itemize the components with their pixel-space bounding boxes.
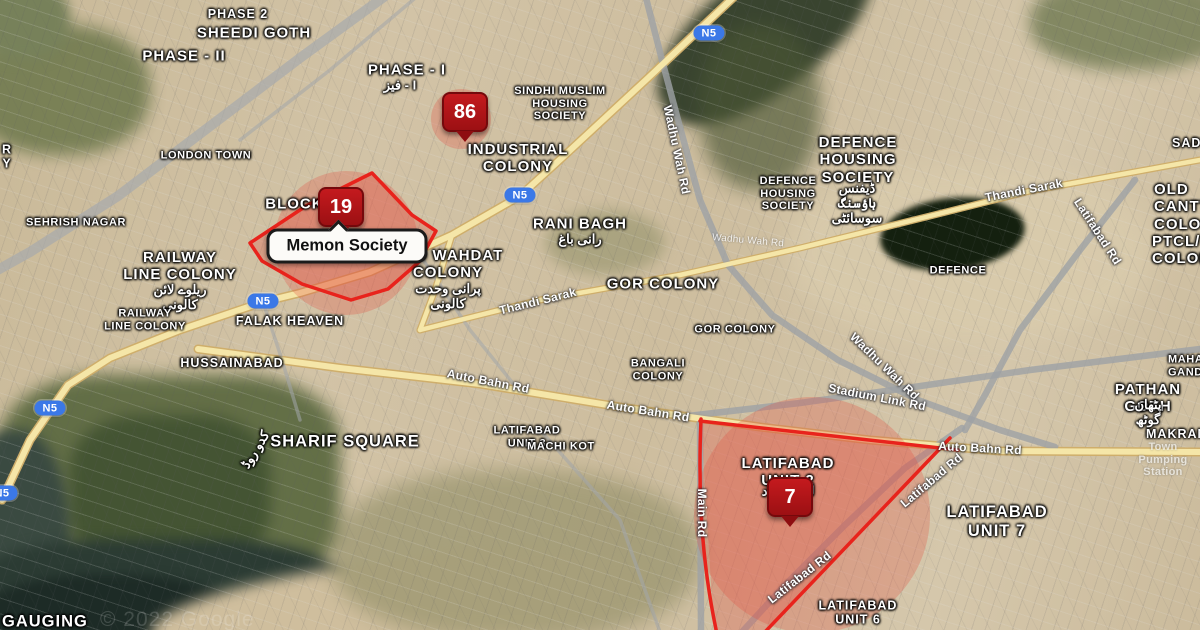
map-labels-layer: PHASE 2SHEEDI GOTHPHASE - IIPHASE - Iفیز…	[0, 0, 1200, 630]
hussainabad-label: HUSSAINABAD	[180, 356, 283, 370]
sindhi-muslim-housing-label: SINDHI MUSLIM HOUSING SOCIETY	[514, 85, 606, 123]
rani-bagh-label: RANI BAGH	[533, 215, 627, 232]
latifabad-rd-upper-label: Latifabad Rd	[1070, 196, 1123, 267]
makrani-label: MAKRANI	[1146, 427, 1200, 441]
gor-colony-sm-label: GOR COLONY	[694, 324, 775, 337]
n5-shield-mid: N5	[504, 188, 535, 203]
kadu-rd-urdu-label: کدو روڈ	[239, 429, 274, 472]
sheedi-goth-label: SHEEDI GOTH	[197, 24, 311, 41]
latifabad-unit-6-label: LATIFABAD UNIT 6	[819, 599, 898, 628]
wadhu-wah-rd-upper-label: Wadhu Wah Rd	[660, 104, 692, 196]
thandi-sarak-west-label: Thandi Sarak	[498, 286, 578, 318]
falak-heaven-label: FALAK HEAVEN	[236, 314, 344, 328]
railway-line-colony-label: RAILWAY LINE COLONY	[123, 249, 237, 284]
n5-shield-falak: N5	[247, 294, 278, 309]
saddar-label: SADDAR	[1172, 136, 1200, 150]
phase-i-label: PHASE - I	[368, 61, 446, 78]
rani-bagh-urdu-label: رانی باغ	[558, 233, 601, 248]
mahatma-gandhi-label: MAHATMA GANDHI	[1168, 353, 1200, 378]
google-watermark-label: © 2022 Google	[100, 608, 255, 630]
defence-housing-urdu-label: ڈیفنس ہاؤسنگ سوسائٹی	[832, 182, 883, 227]
defence-area-label: DEFENCE	[930, 265, 987, 278]
pathan-goth-urdu-label: پٹھان گوٹھ	[1122, 398, 1174, 428]
machi-kot-label: MACHI KOT	[527, 441, 595, 454]
latifabad-rd-mid-label: Latifabad Rd	[898, 451, 965, 511]
marker-19[interactable]: 19	[318, 187, 364, 227]
gor-colony-label: GOR COLONY	[607, 275, 720, 292]
bangali-colony-label: BANGALI COLONY	[631, 357, 685, 382]
town-pumping-station-label: Town Pumping Station	[1138, 441, 1187, 479]
industrial-colony-label: INDUSTRIAL COLONY	[468, 141, 569, 176]
auto-bahn-rd-west-label: Auto Bahn Rd	[446, 367, 531, 396]
latifabad-unit-7-label: LATIFABAD UNIT 7	[946, 503, 1047, 541]
n5-shield-edge: N5	[0, 486, 18, 501]
left-edge-cutoff-label: R Y	[2, 143, 12, 172]
defence-housing-society-label: DEFENCE HOUSING SOCIETY	[819, 134, 898, 186]
auto-bahn-rd-mid-label: Auto Bahn Rd	[606, 399, 691, 426]
marker-86[interactable]: 86	[442, 92, 488, 132]
phase-i-urdu-label: فیز - I	[384, 79, 416, 94]
n5-shield-top: N5	[693, 26, 724, 41]
gauging-label: GAUGING	[2, 613, 88, 630]
wadhu-wah-rd-faint-label: Wadhu Wah Rd	[712, 232, 785, 250]
n5-shield-southwest: N5	[34, 401, 65, 416]
old-cantt-colony-label: OLD CANTT COLONY	[1154, 181, 1200, 233]
sharif-square-label: SHARIF SQUARE	[270, 433, 420, 452]
phase-ii-label: PHASE - II	[142, 47, 225, 64]
memon-society-callout[interactable]: Memon Society	[266, 229, 427, 264]
ptcl-tt-colony-label: PTCL/T&T COLONY	[1152, 233, 1200, 268]
railway-line-colony-sm-label: RAILWAY LINE COLONY	[104, 307, 186, 332]
london-town-label: LONDON TOWN	[161, 150, 252, 163]
main-rd-label: Main Rd	[694, 489, 708, 538]
old-wahdat-urdu-label: پرانی وحدت کالونی	[415, 282, 481, 312]
phase-2-label: PHASE 2	[208, 7, 269, 21]
thandi-sarak-east-label: Thandi Sarak	[984, 177, 1064, 206]
satellite-map[interactable]: PHASE 2SHEEDI GOTHPHASE - IIPHASE - Iفیز…	[0, 0, 1200, 630]
sehrish-nagar-label: SEHRISH NAGAR	[26, 217, 126, 230]
marker-7[interactable]: 7	[767, 477, 813, 517]
defence-housing-society-sm-label: DEFENCE HOUSING SOCIETY	[760, 175, 817, 213]
